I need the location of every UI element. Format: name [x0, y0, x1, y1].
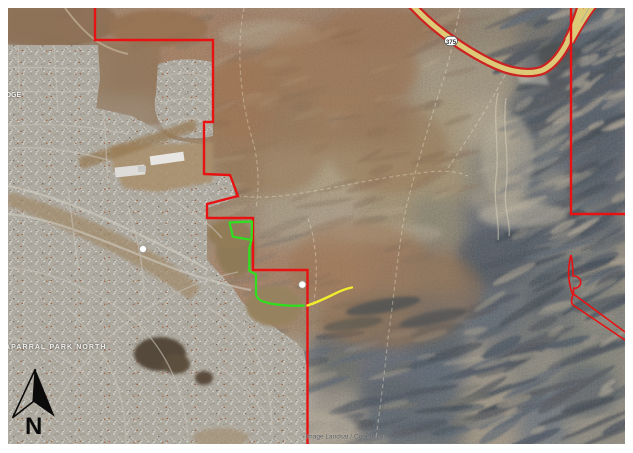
- svg-text:375: 375: [446, 39, 457, 46]
- svg-text:DGE: DGE: [8, 92, 22, 99]
- svg-text:Image Landsat / Copernicus: Image Landsat / Copernicus: [306, 434, 388, 441]
- svg-text:APARRAL PARK NORTH: APARRAL PARK NORTH: [8, 344, 107, 351]
- svg-text:N: N: [25, 413, 42, 440]
